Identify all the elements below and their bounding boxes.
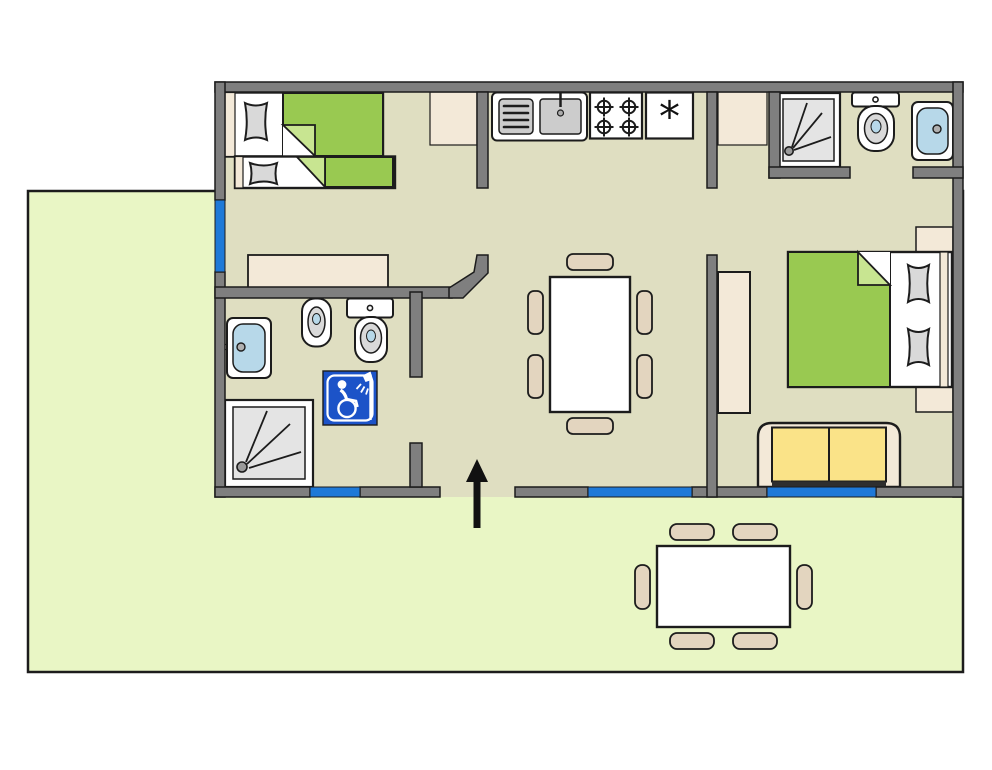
kitchen: * <box>492 92 693 141</box>
bed-headboard <box>235 157 243 189</box>
dining-table <box>550 277 630 412</box>
bidet <box>302 299 331 347</box>
sideboard <box>248 255 388 288</box>
bed-headboard <box>940 252 948 387</box>
flush-button <box>367 305 372 310</box>
dining-chair <box>567 254 613 270</box>
outdoor-chair <box>635 565 650 609</box>
shower-drain-icon <box>237 462 247 472</box>
outdoor-chair <box>670 633 714 649</box>
window-bathroom-1 <box>310 487 360 497</box>
kitchen-sink-unit <box>492 93 587 141</box>
wall-bathroom1-right-upper <box>410 292 422 377</box>
faucet-knob <box>933 125 941 133</box>
single-bed-1 <box>225 93 383 157</box>
outdoor-chair <box>670 524 714 540</box>
nightstand <box>916 227 953 252</box>
sofa-cushion <box>829 428 886 482</box>
pillow <box>908 265 929 302</box>
fridge-asterisk: * <box>659 92 680 141</box>
wardrobe <box>718 272 750 413</box>
double-bed <box>788 252 952 387</box>
window-living <box>588 487 692 497</box>
pillow <box>250 163 277 184</box>
wall-bedroom2-upper <box>707 92 717 188</box>
wall-right <box>953 82 963 497</box>
faucet-knob <box>237 343 245 351</box>
outdoor-chair <box>733 633 777 649</box>
single-bed-2 <box>235 157 395 189</box>
outdoor-chair <box>797 565 812 609</box>
dining-chair <box>528 291 543 334</box>
washbasin-1 <box>222 318 271 378</box>
toilet-water <box>367 330 376 342</box>
wall-bottom-3 <box>515 487 588 497</box>
wall-left-upper <box>215 82 225 200</box>
shower-2 <box>777 93 840 167</box>
accessible-shower-sign <box>323 371 377 425</box>
outdoor-table <box>657 546 790 627</box>
wall-bottom-5 <box>876 487 963 497</box>
sofa-back <box>772 482 886 487</box>
dining-chair <box>637 291 652 334</box>
sofa-cushion <box>772 428 829 482</box>
wall-bottom-2 <box>360 487 440 497</box>
wall-bathroom2-bottom-left <box>769 167 850 178</box>
wall-bathroom1-right-lower <box>410 443 422 487</box>
stove <box>590 93 642 139</box>
wall-bottom-4 <box>692 487 767 497</box>
wall-top <box>215 82 963 92</box>
bidet-water <box>313 314 321 325</box>
nightstand <box>916 387 953 412</box>
outdoor-chair <box>733 524 777 540</box>
pillow <box>245 103 267 140</box>
person-head <box>338 380 347 389</box>
pillow <box>908 329 929 365</box>
window-bedroom-1 <box>215 200 225 272</box>
toilet-2 <box>852 93 899 152</box>
wall-left-lower <box>215 272 225 497</box>
dining-chair <box>637 355 652 398</box>
closet-bedroom-2 <box>718 92 767 145</box>
drainboard <box>499 99 533 134</box>
shower-1 <box>225 400 313 487</box>
sofa <box>758 423 900 487</box>
toilet-water <box>871 120 881 133</box>
refrigerator: * <box>646 92 693 141</box>
bed-blanket <box>325 157 393 187</box>
closet-bedroom-1 <box>430 92 477 145</box>
washbasin-2 <box>912 102 954 160</box>
floor-plan-canvas: * <box>0 0 992 770</box>
flush-button <box>873 97 878 102</box>
wall-bathroom2-left <box>769 92 780 178</box>
wall-bedroom2-lower <box>707 255 717 497</box>
bed-headboard <box>225 93 235 157</box>
dining-chair <box>567 418 613 434</box>
shower-drain-icon <box>785 147 793 155</box>
faucet-knob <box>558 110 564 116</box>
floor-plan: * <box>0 0 992 770</box>
wall-bathroom2-bottom-right <box>913 167 963 178</box>
basin <box>917 108 948 154</box>
wall-kitchen-stub-left <box>477 92 488 188</box>
dining-chair <box>528 355 543 398</box>
wall-bottom-1 <box>215 487 310 497</box>
window-bedroom-2 <box>767 487 876 497</box>
